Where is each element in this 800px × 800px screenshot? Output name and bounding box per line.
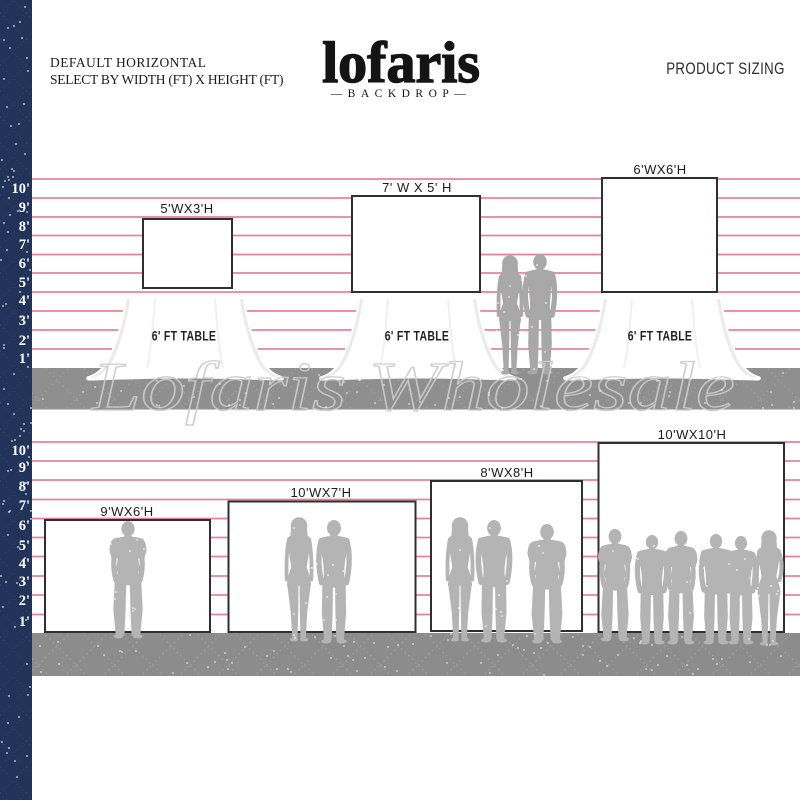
svg-text:9': 9' <box>19 460 30 476</box>
svg-text:6': 6' <box>19 256 30 272</box>
svg-text:SELECT BY WIDTH (FT) X HEIGHT: SELECT BY WIDTH (FT) X HEIGHT (FT) <box>50 72 283 87</box>
svg-text:10': 10' <box>11 443 30 459</box>
svg-text:DEFAULT HORIZONTAL: DEFAULT HORIZONTAL <box>50 55 206 70</box>
svg-text:2': 2' <box>19 593 30 609</box>
svg-text:2': 2' <box>19 333 30 349</box>
svg-text:3': 3' <box>19 574 30 590</box>
svg-text:3': 3' <box>19 313 30 329</box>
svg-text:5': 5' <box>19 275 30 291</box>
svg-text:10'WX7'H: 10'WX7'H <box>291 485 352 500</box>
svg-text:6' FT TABLE: 6' FT TABLE <box>628 328 692 344</box>
svg-text:4': 4' <box>19 293 30 309</box>
svg-text:1': 1' <box>19 351 30 367</box>
svg-text:7': 7' <box>19 237 30 253</box>
svg-text:10': 10' <box>11 181 30 197</box>
svg-text:8': 8' <box>19 219 30 235</box>
svg-text:7' W X 5' H: 7' W X 5' H <box>382 180 452 195</box>
svg-text:5'WX3'H: 5'WX3'H <box>160 201 213 216</box>
svg-text:6' FT TABLE: 6' FT TABLE <box>385 328 449 344</box>
svg-text:lofaris: lofaris <box>322 30 480 95</box>
svg-text:Lofaris Wholesale: Lofaris Wholesale <box>91 349 735 426</box>
svg-text:5': 5' <box>19 538 30 554</box>
svg-text:6': 6' <box>19 518 30 534</box>
svg-text:10'WX10'H: 10'WX10'H <box>658 427 727 442</box>
svg-text:7': 7' <box>19 498 30 514</box>
svg-text:9': 9' <box>19 200 30 216</box>
svg-text:—BACKDROP—: —BACKDROP— <box>330 88 472 100</box>
svg-text:1': 1' <box>19 614 30 630</box>
svg-text:9'WX6'H: 9'WX6'H <box>100 504 153 519</box>
svg-text:6'WX6'H: 6'WX6'H <box>633 162 686 177</box>
svg-text:8'WX8'H: 8'WX8'H <box>480 465 533 480</box>
svg-text:6' FT TABLE: 6' FT TABLE <box>152 328 216 344</box>
svg-text:PRODUCT SIZING: PRODUCT SIZING <box>666 60 785 79</box>
